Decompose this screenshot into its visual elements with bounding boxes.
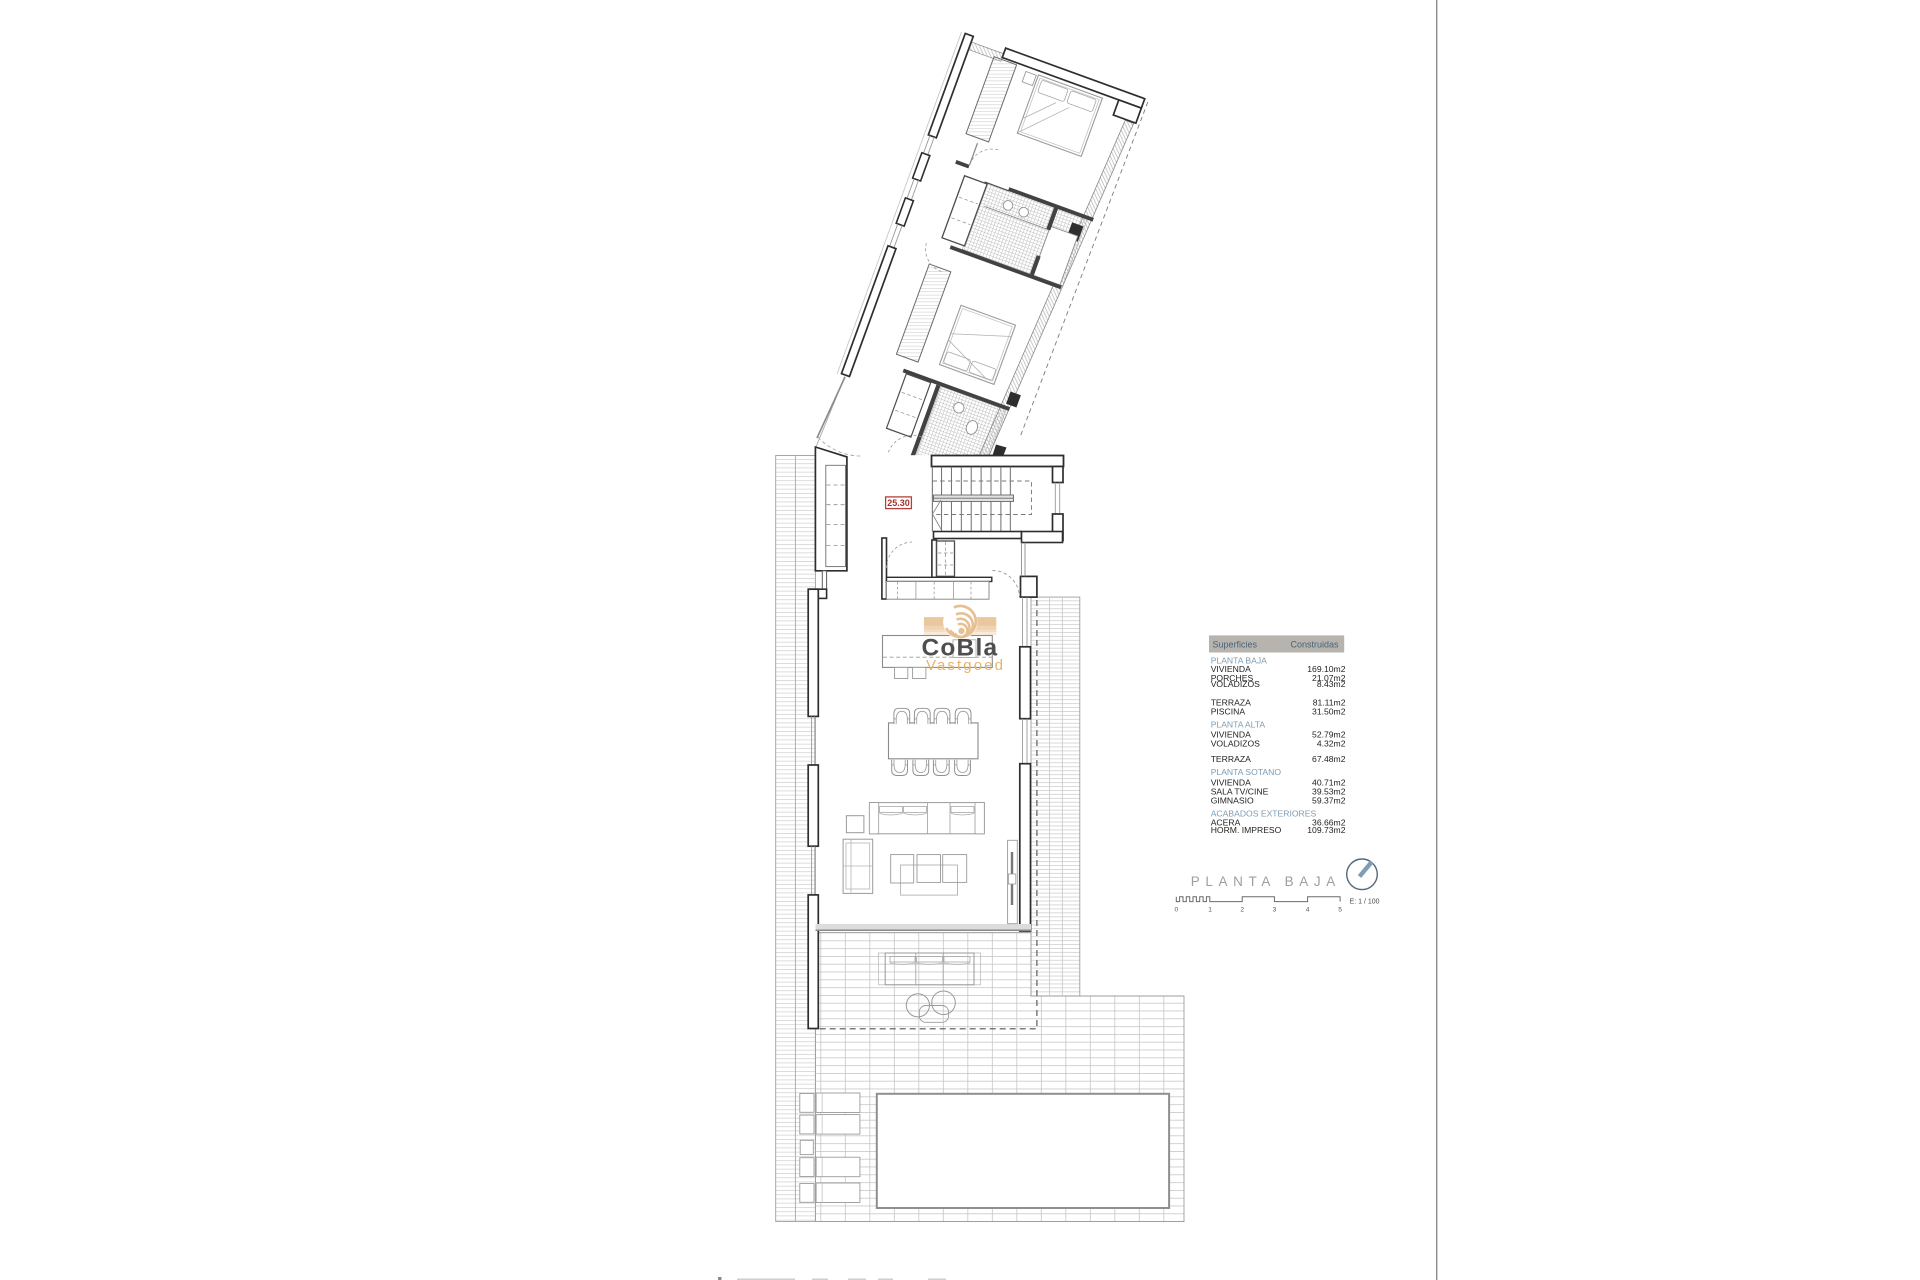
svg-text:PLANTA BAJA: PLANTA BAJA xyxy=(1191,874,1340,889)
svg-text:25.30: 25.30 xyxy=(887,498,910,508)
svg-text:3: 3 xyxy=(1273,907,1277,914)
svg-text:Vastgoed: Vastgoed xyxy=(926,657,1005,674)
svg-text:PISCINA: PISCINA xyxy=(1211,707,1246,717)
svg-text:59.37m2: 59.37m2 xyxy=(1312,795,1346,805)
svg-text:Superficies: Superficies xyxy=(1213,640,1258,650)
svg-text:2: 2 xyxy=(1240,907,1244,914)
svg-text:8.43m2: 8.43m2 xyxy=(1317,679,1346,689)
svg-text:E: 1 / 100: E: 1 / 100 xyxy=(1350,899,1380,906)
svg-text:0: 0 xyxy=(1174,907,1178,914)
svg-text:5: 5 xyxy=(1338,907,1342,914)
svg-text:PLANTA SOTANO: PLANTA SOTANO xyxy=(1211,767,1282,777)
svg-text:VOLADIZOS: VOLADIZOS xyxy=(1211,679,1260,689)
svg-text:VOLADIZOS: VOLADIZOS xyxy=(1211,739,1260,749)
svg-text:1: 1 xyxy=(1208,907,1212,914)
svg-text:GIMNASIO: GIMNASIO xyxy=(1211,795,1254,805)
svg-text:HORM. IMPRESO: HORM. IMPRESO xyxy=(1211,825,1282,835)
svg-text:PLANTA ALTA: PLANTA ALTA xyxy=(1211,719,1266,729)
svg-text:4: 4 xyxy=(1306,907,1310,914)
svg-text:31.50m2: 31.50m2 xyxy=(1312,707,1346,717)
svg-text:4.32m2: 4.32m2 xyxy=(1317,739,1346,749)
svg-text:Construidas: Construidas xyxy=(1291,640,1340,650)
svg-text:67.48m2: 67.48m2 xyxy=(1312,754,1346,764)
svg-text:109.73m2: 109.73m2 xyxy=(1307,825,1345,835)
svg-text:TERRAZA: TERRAZA xyxy=(1211,754,1251,764)
